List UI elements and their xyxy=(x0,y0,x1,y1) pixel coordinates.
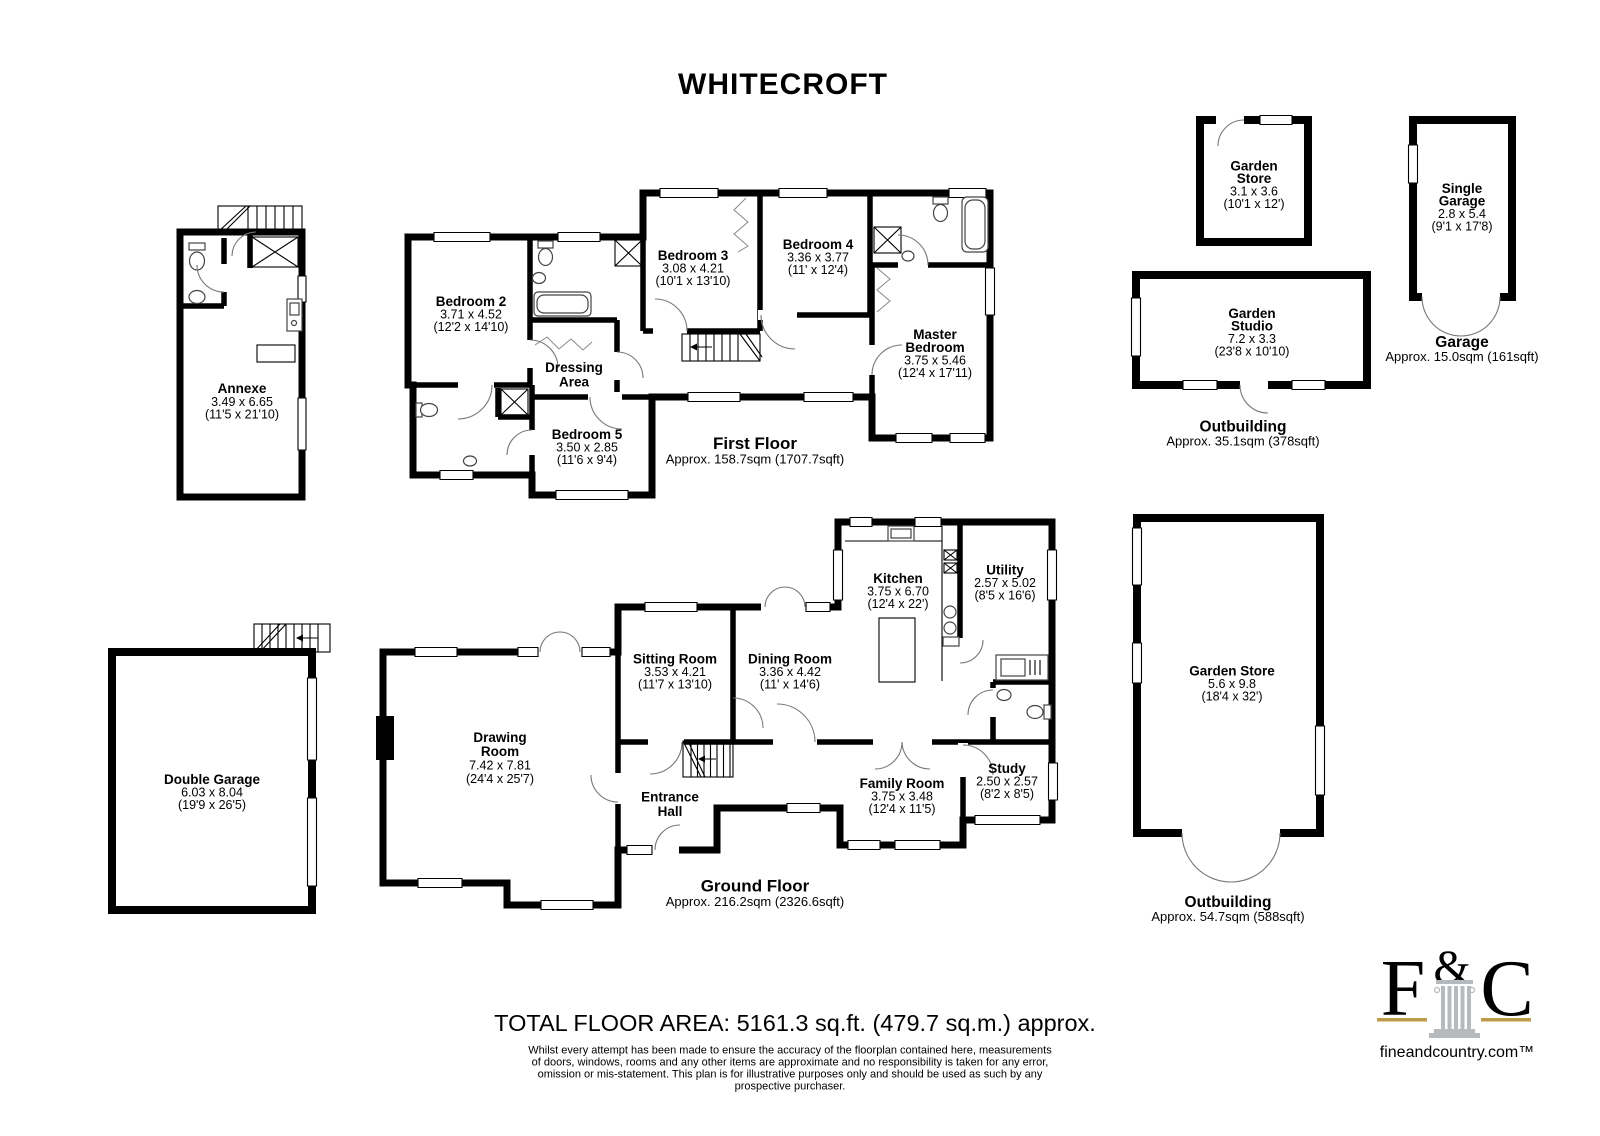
toilet-icon xyxy=(1027,705,1051,719)
door-openings xyxy=(1240,380,1268,390)
toilet-icon xyxy=(538,241,553,266)
shower-icon xyxy=(501,389,528,415)
sitting-room-dims-ft: (11'7 x 13'10) xyxy=(638,678,712,692)
annexe-plan: Annexe 3.49 x 6.65 (11'5 x 21'10) xyxy=(180,206,306,497)
outbuilding-area: Approx. 54.7sqm (588sqft) xyxy=(1151,909,1304,924)
bedroom3-dims-ft: (10'1 x 13'10) xyxy=(656,274,731,288)
garden-studio-plan: Garden Studio 7.2 x 3.3 (23'8 x 10'10) O… xyxy=(1132,275,1368,449)
drawing-room-dims-m: 7.42 x 7.81 xyxy=(469,759,531,773)
window-icon xyxy=(1409,145,1418,183)
hob-icon xyxy=(944,550,957,573)
garden-store-small-dims-ft: (10'1 x 12') xyxy=(1223,197,1284,211)
kitchen-dims-ft: (12'4 x 22') xyxy=(867,597,928,611)
door-arcs xyxy=(1182,833,1280,882)
ground-floor-plan: Drawing Room 7.42 x 7.81 (24'4 x 25'7) S… xyxy=(376,518,1058,910)
floorplan-svg: WHITECROFT Annexe 3.49 x 6.65 (11'5 x 21… xyxy=(0,0,1600,1131)
bedroom2-dims-ft: (12'2 x 14'10) xyxy=(434,320,509,334)
logo-gold-rule-right xyxy=(1481,1018,1531,1022)
staircase-icon xyxy=(682,334,762,361)
first-floor-plan: Bedroom 2 3.71 x 4.52 (12'2 x 14'10) Bed… xyxy=(408,189,995,500)
sink-icon xyxy=(902,251,914,261)
utility-dims-ft: (8'5 x 16'6) xyxy=(974,589,1035,603)
annexe-dims-ft: (11'5 x 21'10) xyxy=(205,408,279,422)
master-bedroom-dims-ft: (12'4 x 17'11) xyxy=(898,366,972,380)
staircase-icon xyxy=(683,741,733,777)
door-openings xyxy=(1182,828,1280,838)
double-garage-dims-ft: (19'9 x 26'5) xyxy=(178,798,246,812)
single-garage-dims-ft: (9'1 x 17'8) xyxy=(1431,220,1492,234)
toilet-icon xyxy=(416,403,438,417)
toilet-icon xyxy=(933,197,948,222)
garage-door-arcs xyxy=(1422,297,1500,336)
utility-sink-icon xyxy=(996,655,1048,680)
disclaimer-line2: of doors, windows, rooms and any other i… xyxy=(532,1057,1049,1069)
closet-icon xyxy=(252,237,298,267)
garden-store-large-dims-ft: (18'4 x 32') xyxy=(1201,690,1262,704)
garage-area: Approx. 15.0sqm (161sqft) xyxy=(1385,349,1538,364)
first-floor-caption: First Floor xyxy=(713,434,797,453)
logo-ampersand: & xyxy=(1433,941,1470,994)
bath-icon xyxy=(534,292,591,316)
floorplan-page: WHITECROFT Annexe 3.49 x 6.65 (11'5 x 21… xyxy=(0,0,1600,1131)
garden-store-large-plan: Garden Store 5.6 x 9.8 (18'4 x 32') Outb… xyxy=(1133,518,1325,924)
dining-room-dims-ft: (11' x 14'6) xyxy=(760,678,820,692)
sink-icon xyxy=(533,273,546,284)
footer: TOTAL FLOOR AREA: 5161.3 sq.ft. (479.7 s… xyxy=(494,1010,1096,1093)
staircase-icon xyxy=(254,624,330,652)
drawing-room-label1: Drawing xyxy=(473,730,526,745)
staircase-icon xyxy=(218,206,302,232)
bedroom4-dims-ft: (11' x 12'4) xyxy=(788,263,848,277)
first-floor-area: Approx. 158.7sqm (1707.7sqft) xyxy=(666,452,845,467)
annexe-label: Annexe xyxy=(218,381,267,396)
counter-icon xyxy=(257,345,295,362)
drawing-room-label2: Room xyxy=(481,744,519,759)
outbuilding-area: Approx. 35.1sqm (378sqft) xyxy=(1166,434,1319,449)
dressing-area-label2: Area xyxy=(559,375,590,390)
window-icon xyxy=(1133,528,1325,795)
study-dims-ft: (8'2 x 8'5) xyxy=(980,787,1034,801)
garden-studio-dims-ft: (23'8 x 10'10) xyxy=(1215,345,1290,359)
shower-icon xyxy=(874,227,901,253)
window-icon xyxy=(1260,116,1292,125)
sink-icon xyxy=(464,456,477,466)
disclaimer-line3: omission or mis-statement. This plan is … xyxy=(538,1069,1043,1081)
oven-icon xyxy=(943,606,959,646)
kitchenette-sink-icon xyxy=(287,299,302,331)
door-openings xyxy=(536,602,998,855)
bedroom5-dims-ft: (11'6 x 9'4) xyxy=(557,453,617,467)
sink-icon xyxy=(189,291,205,304)
bath-icon xyxy=(962,197,988,252)
ground-floor-exterior-walls xyxy=(383,522,1052,905)
logo-gold-rule-left xyxy=(1377,1018,1427,1022)
ground-floor-caption: Ground Floor xyxy=(701,877,810,896)
chimney-breast xyxy=(376,716,394,760)
door-openings xyxy=(1422,292,1500,302)
kitchen-island-icon xyxy=(879,618,915,682)
total-floor-area: TOTAL FLOOR AREA: 5161.3 sq.ft. (479.7 s… xyxy=(494,1010,1096,1036)
family-room-dims-ft: (12'4 x 11'5) xyxy=(868,802,935,816)
plan-title: WHITECROFT xyxy=(678,68,888,101)
double-garage-plan: Double Garage 6.03 x 8.04 (19'9 x 26'5) xyxy=(112,624,330,910)
entrance-hall-label1: Entrance xyxy=(641,790,699,805)
drawing-room-dims-ft: (24'4 x 25'7) xyxy=(466,772,534,786)
dressing-area-label1: Dressing xyxy=(545,360,603,375)
entrance-hall-label2: Hall xyxy=(658,804,683,819)
fine-and-country-logo: F & C fineandcountry.com™ xyxy=(1377,941,1534,1061)
disclaimer-line1: Whilst every attempt has been made to en… xyxy=(528,1045,1052,1057)
single-garage-plan: Single Garage 2.8 x 5.4 (9'1 x 17'8) Gar… xyxy=(1385,120,1538,364)
ground-floor-area: Approx. 216.2sqm (2326.6sqft) xyxy=(666,894,845,909)
garden-store-small-plan: Garden Store 3.1 x 3.6 (10'1 x 12') xyxy=(1200,115,1308,242)
disclaimer-line4: prospective purchaser. xyxy=(735,1081,846,1093)
shower-icon xyxy=(615,240,642,266)
logo-website: fineandcountry.com™ xyxy=(1380,1044,1534,1061)
first-floor-exterior-walls xyxy=(408,193,990,495)
sink-icon xyxy=(997,690,1011,701)
